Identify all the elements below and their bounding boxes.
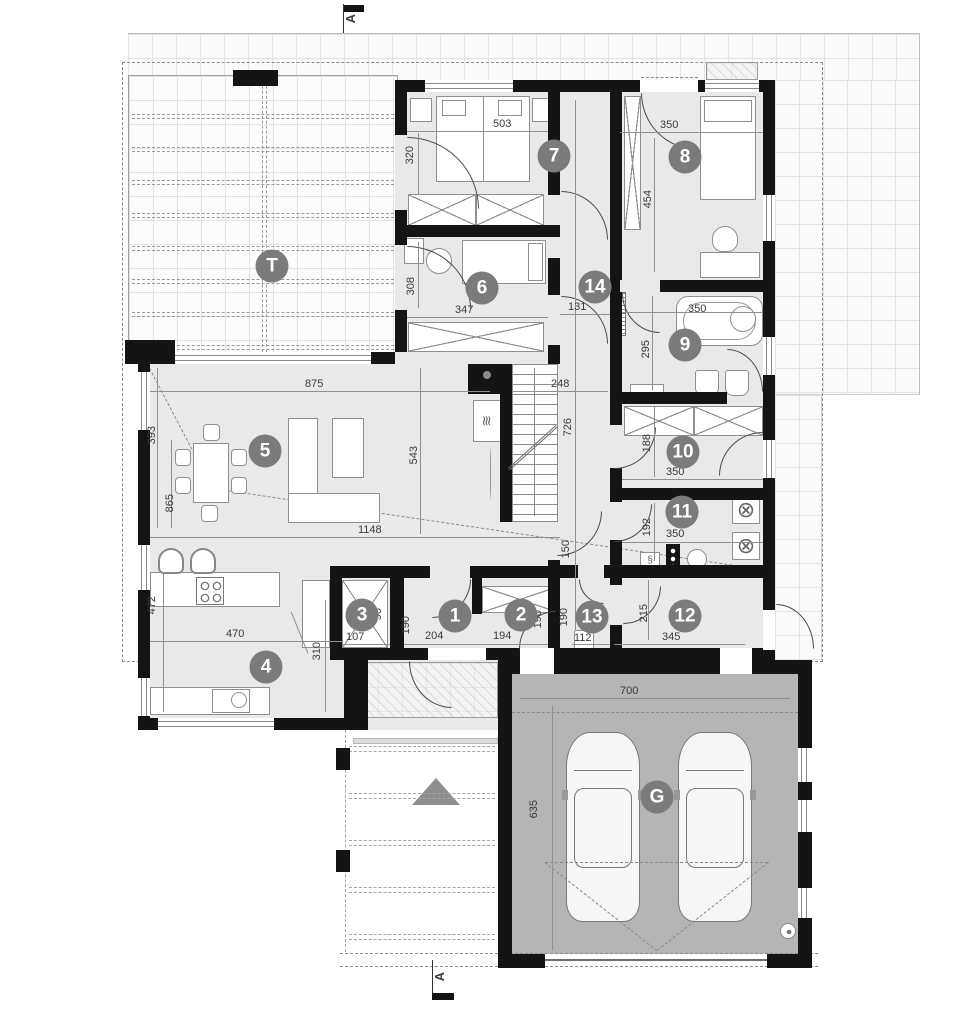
- dim-label: 454: [642, 190, 654, 208]
- window: [763, 195, 775, 241]
- dim-label: 875: [305, 378, 323, 390]
- dining-table: [193, 443, 229, 503]
- wall-segment: [340, 648, 428, 660]
- desk: [700, 252, 760, 278]
- site-boundary: [340, 966, 818, 967]
- sink-basin: [231, 692, 247, 708]
- car-mirror: [674, 790, 680, 800]
- fireplace-icon: ≋: [473, 400, 501, 442]
- dim-line: [418, 133, 419, 195]
- car-hood-line: [686, 770, 744, 771]
- dim-line: [480, 644, 548, 645]
- dim-label: 190: [400, 616, 412, 634]
- section-marker-flag-top: [344, 5, 364, 12]
- window: [138, 678, 150, 716]
- dim-line: [654, 503, 655, 561]
- paving-dash-line: [349, 934, 495, 940]
- bed-center-line: [483, 96, 484, 182]
- garage-door-swing: [545, 862, 768, 863]
- garage-window: [798, 888, 812, 918]
- dining-chair: [203, 424, 220, 441]
- dim-label: 131: [568, 301, 586, 313]
- dining-chair: [175, 449, 191, 466]
- dim-label: 320: [404, 146, 416, 164]
- entrance-door-gap: [428, 648, 486, 660]
- wall-segment: [233, 70, 278, 86]
- window: [158, 718, 274, 730]
- wardrobe: [408, 322, 544, 352]
- dim-line: [520, 698, 790, 699]
- section-marker-label-bottom: A: [434, 972, 446, 981]
- car-cabin: [686, 788, 744, 868]
- bar-stool: [158, 548, 184, 574]
- wall-segment: [548, 345, 560, 364]
- dim-label: 347: [455, 304, 473, 316]
- dim-line: [620, 132, 763, 133]
- paving-dash-line: [349, 840, 495, 846]
- dim-line: [512, 391, 608, 392]
- dim-line: [404, 644, 480, 645]
- dining-chair: [201, 505, 218, 522]
- paving-dash-line: [349, 793, 495, 799]
- dim-label: 350: [666, 528, 684, 540]
- dim-label: 215: [638, 604, 650, 622]
- pillow: [528, 243, 543, 281]
- room-label-14: 14: [579, 271, 612, 304]
- wall-segment: [498, 954, 545, 968]
- chair: [712, 226, 738, 252]
- garage-access-door: [518, 648, 556, 674]
- dim-line: [575, 100, 576, 630]
- pillow: [442, 100, 466, 116]
- wall-segment: [371, 352, 395, 364]
- wall-segment: [548, 258, 560, 295]
- garage-ceiling-line: [512, 712, 798, 713]
- terrace-label: T: [256, 250, 289, 283]
- dim-label: 192: [641, 518, 653, 536]
- stove: [196, 577, 224, 605]
- wall-segment: [556, 648, 718, 660]
- window: [425, 80, 513, 92]
- room-label-8: 8: [669, 141, 702, 174]
- dining-chair: [231, 449, 247, 466]
- wall-segment: [330, 566, 342, 660]
- dim-line: [572, 644, 610, 645]
- wall-segment: [698, 80, 705, 92]
- garage-access-door: [718, 648, 754, 674]
- dim-label: 726: [562, 418, 574, 436]
- kitchen-counter: [150, 687, 270, 715]
- wall-segment: [150, 352, 175, 364]
- wardrobe: [624, 96, 641, 230]
- dim-label: 194: [493, 630, 511, 642]
- garage-label: G: [641, 781, 674, 814]
- coffee-table: [332, 418, 364, 478]
- room-label-2: 2: [505, 599, 538, 632]
- wall-segment: [356, 648, 368, 730]
- nightstand: [410, 98, 432, 122]
- wall-segment: [610, 468, 622, 502]
- wall-segment: [622, 392, 727, 404]
- dim-line: [325, 600, 326, 712]
- room-label-9: 9: [669, 329, 702, 362]
- dim-line: [418, 242, 419, 308]
- dim-label: 1148: [358, 524, 382, 536]
- room-label-13: 13: [576, 601, 609, 634]
- wall-segment: [472, 578, 482, 614]
- wall-segment: [395, 225, 560, 237]
- room-label-7: 7: [538, 140, 571, 173]
- wall-segment: [798, 832, 812, 888]
- dim-line: [157, 368, 158, 528]
- dim-label: 150: [560, 540, 572, 558]
- dim-label: 204: [425, 630, 443, 642]
- wall-segment: [610, 92, 622, 280]
- site-boundary: [340, 953, 818, 954]
- room-label-12: 12: [669, 600, 702, 633]
- dim-label: 700: [620, 685, 638, 697]
- paving-dash-line: [349, 746, 495, 752]
- dim-line: [560, 314, 610, 315]
- section-marker-label-top: A: [345, 14, 357, 23]
- opening-line: [641, 77, 698, 78]
- dim-label: 543: [408, 446, 420, 464]
- wall-segment: [336, 748, 350, 770]
- wall-segment: [604, 565, 775, 578]
- car-mirror: [562, 790, 568, 800]
- exterior-door: [763, 610, 775, 650]
- dim-line: [407, 131, 548, 132]
- wall-segment: [763, 80, 775, 195]
- window: [705, 80, 759, 92]
- chimney-dot: [483, 371, 491, 379]
- dim-line: [420, 368, 421, 534]
- driveway: [345, 730, 498, 952]
- dim-label: 188: [641, 434, 653, 452]
- dim-line: [614, 644, 745, 645]
- garage-window: [798, 800, 812, 832]
- car-cabin: [574, 788, 632, 868]
- wall-segment: [610, 540, 622, 585]
- dryer-icon: ⊗: [732, 532, 760, 560]
- dim-line: [552, 706, 553, 950]
- dim-line: [654, 138, 655, 272]
- wall-segment: [498, 660, 512, 968]
- dim-label: 107: [346, 631, 364, 643]
- room-label-4: 4: [250, 651, 283, 684]
- room-label-6: 6: [466, 272, 499, 305]
- bar-stool: [190, 548, 216, 574]
- dim-label: 393: [146, 426, 158, 444]
- wall-segment: [556, 660, 718, 674]
- wall-segment: [340, 566, 430, 578]
- floor-plan: ⊗ ⊗ § ≋: [0, 0, 956, 1014]
- window: [138, 545, 150, 590]
- dim-line: [150, 537, 560, 538]
- sofa: [288, 493, 380, 523]
- floor-drain: [780, 923, 796, 939]
- dining-chair: [175, 477, 191, 494]
- dim-label: 503: [493, 118, 511, 130]
- wall-segment: [486, 648, 518, 660]
- car-mirror: [750, 790, 756, 800]
- wall-segment: [660, 280, 775, 292]
- garage-window: [798, 748, 812, 782]
- paving-dash-line: [349, 887, 495, 893]
- dim-label: 635: [528, 800, 540, 818]
- wall-segment: [500, 364, 512, 522]
- wall-segment: [395, 310, 407, 352]
- pillow: [704, 100, 752, 122]
- dim-label: 350: [688, 303, 706, 315]
- wall-segment: [138, 718, 158, 730]
- dim-label: 345: [662, 631, 680, 643]
- wardrobe: [694, 406, 763, 436]
- room-label-10: 10: [667, 436, 700, 469]
- wall-segment: [763, 375, 775, 440]
- dim-line: [652, 296, 653, 390]
- wall-segment: [395, 92, 407, 135]
- dim-line: [171, 440, 172, 528]
- wall-segment: [610, 292, 622, 425]
- dim-label: 472: [146, 596, 158, 614]
- wardrobe: [476, 194, 544, 226]
- dim-line: [407, 317, 548, 318]
- dim-label: 295: [640, 340, 652, 358]
- dim-label: 112: [574, 632, 592, 644]
- room-label-1: 1: [439, 600, 472, 633]
- wall-segment: [138, 430, 150, 545]
- tv-line: [490, 448, 491, 500]
- window: [763, 337, 775, 375]
- wall-segment: [622, 488, 775, 500]
- washer-icon: ⊗: [732, 496, 760, 524]
- wall-segment: [798, 782, 812, 800]
- dim-label: 470: [226, 628, 244, 640]
- dim-line: [150, 391, 490, 392]
- dim-label: 865: [164, 494, 176, 512]
- garage-floor: [512, 674, 798, 954]
- wall-segment: [513, 80, 640, 92]
- exterior-door: [763, 440, 775, 478]
- garage-door: [545, 959, 767, 961]
- car-hood-line: [574, 770, 632, 771]
- wall-segment: [763, 241, 775, 337]
- wall-segment: [767, 954, 812, 968]
- wall-segment: [763, 478, 775, 610]
- wall-segment: [470, 566, 560, 578]
- dim-line: [654, 407, 655, 477]
- pillow: [498, 100, 522, 116]
- dim-line: [163, 572, 164, 712]
- dim-label: 308: [405, 277, 417, 295]
- terrace-joint-line: [262, 76, 267, 357]
- wall-segment: [344, 660, 356, 718]
- window: [138, 372, 150, 430]
- dim-line: [622, 479, 763, 480]
- wall-segment: [390, 566, 404, 660]
- room-label-3: 3: [346, 599, 379, 632]
- dim-line: [342, 644, 390, 645]
- wall-segment: [798, 660, 812, 748]
- wall-segment: [395, 80, 425, 92]
- dim-label: 248: [551, 378, 569, 390]
- dining-chair: [231, 477, 247, 494]
- wall-segment: [610, 280, 620, 292]
- wall-segment: [763, 650, 775, 660]
- room-label-11: 11: [666, 496, 699, 529]
- section-marker-flag-bottom: [432, 993, 454, 1000]
- terrace-sliding-door: [175, 352, 371, 364]
- dim-label: 350: [660, 119, 678, 131]
- wall-segment: [336, 850, 350, 872]
- washbasin: [730, 306, 756, 332]
- wall-segment: [274, 718, 368, 730]
- dim-label: 310: [311, 642, 323, 660]
- dim-line: [622, 542, 763, 543]
- wall-segment: [138, 352, 150, 372]
- room-label-5: 5: [249, 435, 282, 468]
- chimney-block: [706, 62, 758, 80]
- dim-label: 190: [558, 608, 570, 626]
